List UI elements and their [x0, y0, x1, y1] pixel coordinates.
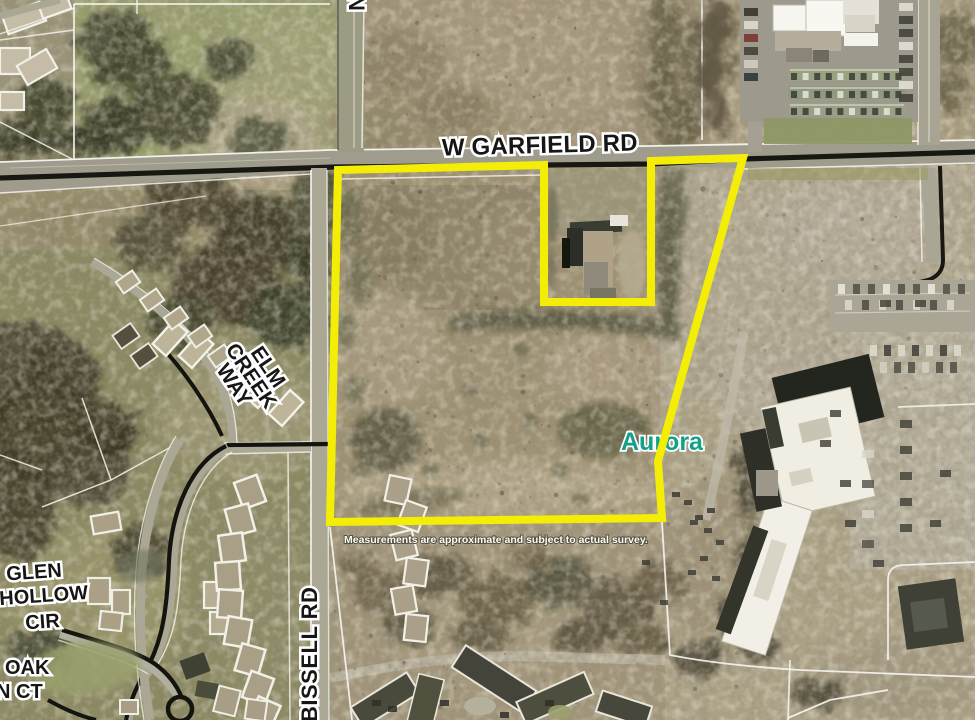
svg-text:Measurements are approximate a: Measurements are approximate and subject…	[344, 534, 648, 546]
svg-text:N: N	[344, 0, 369, 11]
svg-text:OAK: OAK	[5, 657, 50, 679]
svg-text:CIR: CIR	[25, 610, 61, 634]
svg-text:BISSELL RD: BISSELL RD	[297, 587, 322, 720]
svg-text:N CT: N CT	[0, 681, 43, 703]
svg-text:GLEN: GLEN	[6, 560, 63, 586]
svg-text:W GARFIELD RD: W GARFIELD RD	[442, 129, 639, 161]
